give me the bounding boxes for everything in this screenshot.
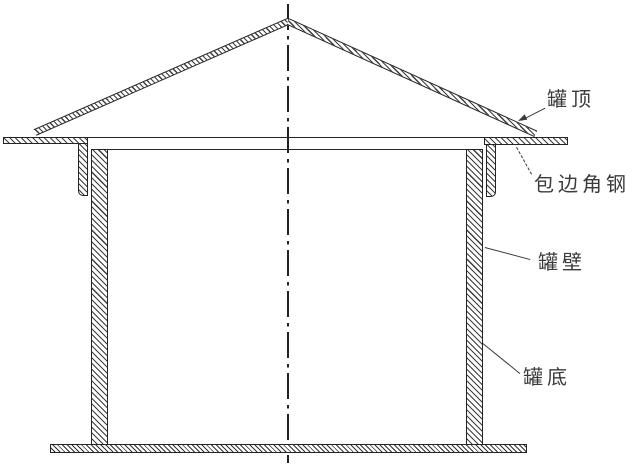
roof-plate-left-slope [34, 18, 290, 136]
bottom-leader-line [482, 343, 520, 374]
curb-angle-left-horizontal-leg [3, 137, 88, 144]
label-wall: 罐壁 [538, 252, 586, 272]
vertical-centerline [287, 4, 289, 463]
curb-angle-right-horizontal-leg [484, 137, 568, 145]
tank-bottom-plate [50, 444, 527, 453]
wall-leader-line [485, 247, 531, 260]
tank-wall-right [466, 149, 483, 445]
edge-angle-leader-line [516, 147, 532, 175]
label-edge-angle: 包边角钢 [534, 174, 630, 194]
tank-top-edge-line [86, 137, 486, 138]
roof-plate-right-slope [287, 18, 538, 137]
tank-section-diagram: 罐顶 包边角钢 罐壁 罐底 [0, 0, 640, 467]
label-roof: 罐顶 [547, 89, 595, 109]
roof-underside-line [108, 149, 466, 150]
curb-angle-right-vertical-leg [486, 144, 496, 197]
label-bottom: 罐底 [523, 367, 571, 387]
curb-angle-left-vertical-leg [78, 143, 88, 196]
tank-wall-left [91, 149, 108, 445]
